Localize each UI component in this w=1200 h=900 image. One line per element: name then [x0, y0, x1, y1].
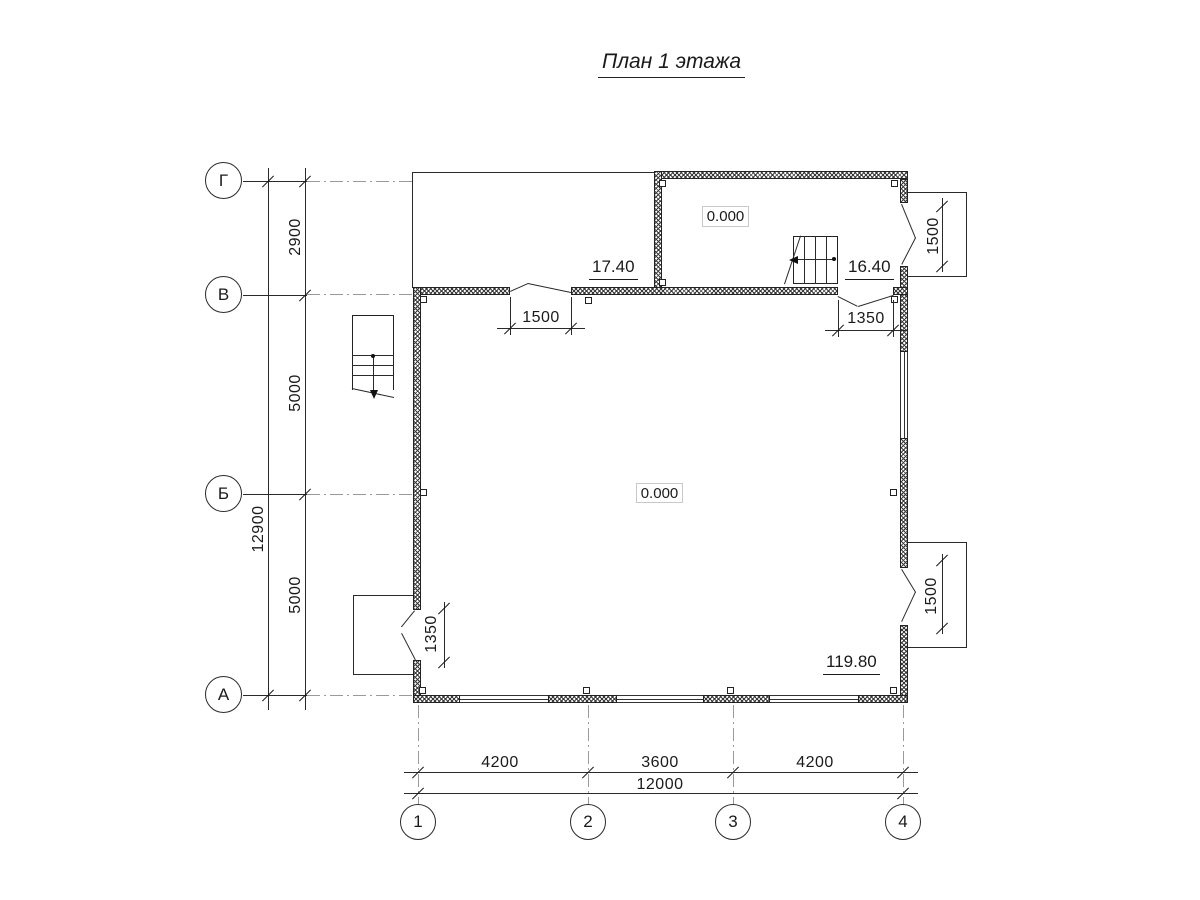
column-marker	[891, 180, 898, 187]
wall-segment	[900, 625, 908, 703]
axis-circle-row-g: Г	[205, 162, 242, 199]
stair-tread	[815, 236, 816, 284]
dim-line-bottom-inner	[404, 772, 918, 773]
wall-segment	[571, 287, 838, 295]
wall-segment	[413, 287, 421, 610]
dim-balcony-bottom: 1500	[924, 566, 940, 626]
dim-left-segment-1: 2900	[288, 207, 304, 267]
axis-line-row-g	[307, 181, 413, 182]
axis-extension	[243, 295, 307, 296]
terrace-left-edge	[412, 172, 413, 288]
axis-circle-row-b: Б	[205, 475, 242, 512]
axis-line-col-4	[903, 705, 904, 804]
door-swing	[510, 283, 529, 292]
column-marker	[890, 489, 897, 496]
window	[900, 352, 908, 438]
axis-line-row-b	[307, 494, 413, 495]
axis-line-col-2	[588, 705, 589, 804]
dim-door-top-right: 1350	[836, 311, 896, 327]
axis-line-col-3	[733, 705, 734, 804]
axis-circle-row-a: А	[205, 676, 242, 713]
column-marker	[420, 489, 427, 496]
wall-segment	[654, 171, 662, 295]
column-marker	[419, 687, 426, 694]
dim-left-segment-3: 5000	[288, 565, 304, 625]
stair-direction-arrow	[789, 256, 798, 264]
wall-segment	[858, 695, 908, 703]
level-mark-hall: 0.000	[702, 206, 749, 227]
level-mark-main: 0.000	[636, 483, 683, 503]
stair-start-dot	[371, 354, 375, 358]
stair-direction-arrow	[370, 390, 378, 399]
window	[617, 695, 703, 703]
axis-circle-col-4: 4	[885, 804, 921, 840]
dim-line-left-outer	[268, 168, 269, 710]
dim-line-balcony-top	[942, 198, 943, 272]
stair-direction-line	[797, 259, 836, 260]
wall-segment	[900, 438, 908, 568]
window	[770, 695, 858, 703]
window	[460, 695, 548, 703]
axis-circle-col-1: 1	[400, 804, 436, 840]
axis-line-col-1	[418, 705, 419, 804]
porch-bottom-left	[353, 595, 415, 675]
dim-balcony-top: 1500	[926, 206, 942, 266]
stair-tread	[804, 236, 805, 284]
column-marker	[585, 297, 592, 304]
column-marker	[583, 687, 590, 694]
area-label-terrace: 17.40	[589, 257, 638, 280]
column-marker	[420, 296, 427, 303]
axis-extension	[243, 494, 307, 495]
dim-left-total: 12900	[251, 499, 267, 559]
axis-circle-row-v: В	[205, 276, 242, 313]
stair-direction-line	[373, 356, 374, 392]
door-swing	[858, 295, 894, 307]
dim-extension	[571, 297, 572, 335]
dim-line-left-inner	[305, 168, 306, 710]
floor-plan-drawing: План 1 этажа 2900 5000 5000 12900 4200 3…	[0, 0, 1200, 900]
wall-segment	[413, 695, 460, 703]
axis-extension	[243, 695, 307, 696]
wall-segment	[548, 695, 617, 703]
axis-line-row-v	[307, 294, 413, 295]
area-label-main: 119.80	[823, 652, 880, 675]
dim-line-balcony-bottom	[942, 554, 943, 634]
dim-bottom-segment-2: 3600	[630, 755, 690, 771]
dim-bottom-total: 12000	[630, 777, 690, 793]
wall-segment	[900, 179, 908, 203]
dim-porch: 1350	[424, 604, 440, 664]
axis-circle-col-2: 2	[570, 804, 606, 840]
wall-segment	[413, 287, 510, 295]
dim-bottom-segment-3: 4200	[785, 755, 845, 771]
wall-segment	[893, 287, 908, 295]
column-marker	[727, 687, 734, 694]
wall-segment	[655, 171, 908, 179]
terrace-top-edge	[413, 172, 656, 173]
column-marker	[659, 279, 666, 286]
dim-left-segment-2: 5000	[288, 363, 304, 423]
dim-bottom-segment-1: 4200	[470, 755, 530, 771]
stair-tread	[826, 236, 827, 284]
axis-extension	[243, 181, 307, 182]
stair-start-dot	[832, 257, 836, 261]
dim-line-porch	[444, 602, 445, 668]
axis-line-row-a	[307, 695, 413, 696]
door-swing	[528, 283, 571, 293]
column-marker	[659, 180, 666, 187]
wall-segment	[900, 266, 908, 352]
drawing-title: План 1 этажа	[598, 50, 745, 78]
dim-line-bottom-outer	[404, 793, 918, 794]
door-swing	[838, 296, 858, 307]
dim-door-top: 1500	[511, 310, 571, 326]
column-marker	[890, 687, 897, 694]
wall-segment	[703, 695, 770, 703]
area-label-hall: 16.40	[845, 257, 894, 280]
axis-circle-col-3: 3	[715, 804, 751, 840]
